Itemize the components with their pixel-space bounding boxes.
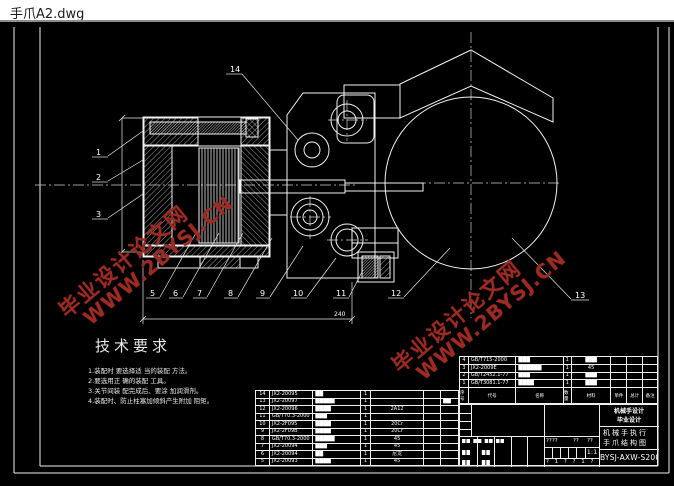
bom-row: 4GB/T715-2000███1███ bbox=[460, 357, 657, 364]
window-titlebar: 手爪A2.dwg bbox=[0, 0, 674, 20]
tech-requirements-heading: 技术要求 bbox=[95, 335, 213, 356]
title-block: 机械手设计 毕业设计 机械手执行 手爪结构图 BYSJ-AXW-S2008 1:… bbox=[459, 404, 658, 466]
bom-row: 13JX2-20097█████1██ bbox=[256, 398, 458, 406]
bom-cell-name: ██████ bbox=[516, 365, 564, 372]
bom-cell-r2 bbox=[627, 357, 643, 364]
side-plate bbox=[287, 85, 400, 278]
bom-cell-code: GB/T715-2000 bbox=[469, 357, 517, 364]
drawing-number: BYSJ-AXW-S2008 bbox=[600, 453, 658, 462]
part-label: 11 bbox=[336, 289, 346, 298]
drawing-canvas[interactable]: 240 1 2 3 5 bbox=[0, 20, 674, 486]
bom-header-cell: 总计 bbox=[627, 388, 643, 403]
bom-header-cell: 名称 bbox=[516, 388, 564, 403]
tech-requirement-item: 2.要选用正 确的装配 工具。 bbox=[88, 376, 213, 386]
cad-viewer-window: 手爪A2.dwg bbox=[0, 0, 674, 486]
bom-row: 11GB/T70.3-2000███1 bbox=[256, 413, 458, 421]
bom-cell-r2 bbox=[441, 459, 458, 466]
bom-cell-mat: ███ bbox=[572, 357, 612, 364]
tech-requirement-item: 3.关节间装 配完成后、要涂 加润滑剂。 bbox=[88, 386, 213, 396]
bom-cell-no: 4 bbox=[460, 357, 469, 364]
scale-value: 1:1 bbox=[585, 448, 599, 456]
part-label: 8 bbox=[228, 289, 233, 298]
bom-cell-r3 bbox=[643, 365, 657, 372]
bom-cell-qty: 1 bbox=[564, 365, 572, 372]
part-label: 2 bbox=[96, 173, 101, 182]
tech-requirement-item: 1.装配时 要选择适 当的装配 方法。 bbox=[88, 366, 213, 376]
bom-row: 7JX2-20094███145 bbox=[256, 443, 458, 451]
signature-cell: ???? bbox=[546, 438, 558, 444]
bom-cell-no: 3 bbox=[460, 365, 469, 372]
bom-header-cell: 备注 bbox=[643, 388, 657, 403]
bom-row: 1GB/T3081.1-77████1███ bbox=[460, 379, 657, 387]
bom-cell-r1 bbox=[611, 380, 627, 387]
bom-table-left: 14JX2-20095██113JX2-20097█████1██12JX2-2… bbox=[255, 390, 459, 466]
bom-cell-r2 bbox=[627, 365, 643, 372]
bom-cell-mat: 45 bbox=[572, 365, 612, 372]
bom-cell-qty: 1 bbox=[564, 380, 572, 387]
part-label: 7 bbox=[197, 289, 202, 298]
bom-header-cell: 单件 bbox=[611, 388, 627, 403]
change-record-row: ██ ██ ██ ██ bbox=[462, 439, 505, 444]
bom-cell-r2 bbox=[627, 373, 643, 380]
bom-cell-name: ███ bbox=[516, 373, 564, 380]
bom-cell-r1 bbox=[424, 459, 441, 466]
bom-cell-r3 bbox=[643, 373, 657, 380]
bom-header-cell: 数量 bbox=[564, 388, 572, 403]
signature-cell: ? 1 ? ? 1 ? bbox=[546, 459, 598, 465]
bom-row: 2GB/T2452.1-77███1███ bbox=[460, 372, 657, 380]
part-label: 9 bbox=[260, 289, 265, 298]
org-name: 机械手设计 毕业设计 bbox=[601, 407, 657, 425]
bom-cell-r3 bbox=[643, 380, 657, 387]
bom-row: 10JX2-2F095████120Cr bbox=[256, 420, 458, 428]
part-label: 10 bbox=[293, 289, 303, 298]
signature-cell: ?? bbox=[587, 438, 593, 444]
part-label: 6 bbox=[173, 289, 178, 298]
bom-table-right: 4GB/T715-2000███1███3JX2-2009E██████1452… bbox=[459, 356, 658, 388]
part-label: 1 bbox=[96, 148, 101, 157]
bom-row: 3JX2-2009E██████145 bbox=[460, 364, 657, 372]
bom-cell-r1 bbox=[611, 365, 627, 372]
bom-cell-qty: 1 bbox=[361, 459, 371, 466]
bom-header-row: 序号 代号 名称 数量 材料 单件 总计 备注 bbox=[459, 388, 658, 404]
bom-cell-r3 bbox=[643, 357, 657, 364]
bom-row: 6JX2-20094██1尼龙 bbox=[256, 450, 458, 458]
part-label: 14 bbox=[230, 65, 240, 74]
bom-cell-qty: 1 bbox=[564, 357, 572, 364]
change-record-row: ██ ██ bbox=[462, 450, 491, 456]
bom-row: 12JX2-20096████12A12 bbox=[256, 405, 458, 413]
bom-cell-code: JX2-2009E bbox=[469, 365, 517, 372]
bom-cell-r1 bbox=[611, 357, 627, 364]
technical-requirements: 技术要求 1.装配时 要选择适 当的装配 方法。 2.要选用正 确的装配 工具。… bbox=[88, 335, 213, 406]
bom-cell-name: ███ bbox=[516, 357, 564, 364]
part-label: 5 bbox=[150, 289, 155, 298]
tech-requirement-item: 4.装配时、防止柱塞加倾斜产生附加 阻矩。 bbox=[88, 396, 213, 406]
part-label: 3 bbox=[96, 210, 101, 219]
bom-header-cell: 序号 bbox=[460, 388, 469, 403]
bom-cell-mat: 45 bbox=[371, 459, 424, 466]
part-label: 12 bbox=[391, 289, 401, 298]
bom-row: 9JX2-2F09B████120Cr bbox=[256, 428, 458, 436]
bom-row: 5JX2-20093████145 bbox=[256, 458, 458, 466]
bom-cell-no: 1 bbox=[460, 380, 469, 387]
bom-row: 8GB/T70.3-2000█████145 bbox=[256, 435, 458, 443]
change-record-row: ██ ██ bbox=[462, 460, 491, 466]
bom-cell-name: ████ bbox=[516, 380, 564, 387]
bom-cell-no: 2 bbox=[460, 373, 469, 380]
bom-cell-mat: ███ bbox=[572, 373, 612, 380]
signature-cell: ?? bbox=[573, 438, 579, 444]
bom-cell-code: JX2-20093 bbox=[270, 459, 314, 466]
bom-cell-r2 bbox=[627, 380, 643, 387]
bom-header-cell: 代号 bbox=[469, 388, 517, 403]
bom-cell-qty: 1 bbox=[564, 373, 572, 380]
bom-header-cell: 材料 bbox=[572, 388, 612, 403]
dimension-240: 240 bbox=[334, 311, 346, 318]
bom-cell-no: 5 bbox=[256, 459, 270, 466]
drawing-title: 机械手执行 手爪结构图 bbox=[603, 428, 657, 448]
bom-cell-code: GB/T2452.1-77 bbox=[469, 373, 517, 380]
bom-cell-code: GB/T3081.1-77 bbox=[469, 380, 517, 387]
bom-cell-name: ████ bbox=[313, 459, 361, 466]
part-label: 13 bbox=[575, 291, 585, 300]
bom-cell-r1 bbox=[611, 373, 627, 380]
bom-cell-mat: ███ bbox=[572, 380, 612, 387]
